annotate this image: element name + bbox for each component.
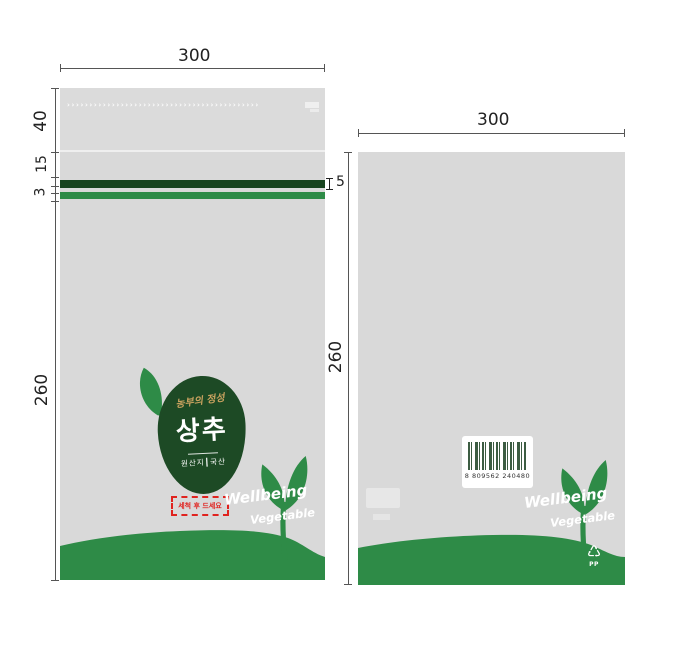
logo-blob: 농부의 정성 상추 원산지┃국산 — [155, 374, 249, 496]
dim-tick — [51, 88, 59, 89]
logo-script-text: 농부의 정성 — [175, 389, 226, 411]
recycle-icon: ♺ PP — [580, 544, 608, 568]
dim-tick — [344, 584, 352, 585]
front-bag: ››››››››››››››››››››››››››››››››››››››››… — [60, 88, 325, 580]
dim-front-small: 3 — [32, 188, 48, 197]
light-green-stripe — [60, 192, 325, 199]
perforation-line: ››››››››››››››››››››››››››››››››››››››››… — [67, 101, 319, 109]
dim-tick — [51, 580, 59, 581]
origin-label: 원산지┃국산 — [181, 456, 227, 469]
dim-tick — [324, 64, 325, 72]
perforation-end-mark — [305, 102, 319, 108]
dim-line-back-left — [348, 152, 349, 585]
stripe-thickness-bracket — [326, 178, 333, 190]
dark-green-stripe — [60, 180, 325, 188]
packaging-design-canvas: ››››››››››››››››››››››››››››››››››››››››… — [0, 0, 682, 654]
dim-tick — [51, 177, 59, 178]
warning-text: 세척 후 드세요 — [178, 501, 222, 511]
bag-flap: ››››››››››››››››››››››››››››››››››››››››… — [60, 88, 325, 152]
dim-tick — [51, 152, 59, 153]
dim-line-back-width — [358, 133, 625, 134]
dim-tick — [51, 186, 59, 187]
dim-tick — [51, 193, 59, 194]
recycle-symbol: ♺ — [580, 544, 608, 560]
recycle-material-label: PP — [580, 561, 608, 568]
dim-front-stripe: 5 — [336, 174, 345, 190]
dim-line-front-left — [55, 88, 56, 581]
dim-back-height: 260 — [326, 341, 346, 373]
dim-back-width: 300 — [477, 110, 509, 130]
warning-box: 세척 후 드세요 — [171, 496, 229, 516]
dim-front-body: 260 — [32, 374, 52, 406]
faint-stamp-mark — [366, 488, 400, 508]
dim-tick — [51, 201, 59, 202]
barcode: 8 809562 240480 — [462, 436, 533, 488]
back-bag: 8 809562 240480 Wellbeing Vegetable ♺ PP — [358, 152, 625, 585]
product-name: 상추 — [175, 409, 229, 449]
dim-front-width: 300 — [178, 46, 210, 66]
dim-front-flap: 40 — [31, 110, 51, 132]
dim-tick — [344, 152, 352, 153]
dim-tick — [358, 129, 359, 137]
faint-stamp-text — [373, 514, 390, 520]
dim-tick — [60, 64, 61, 72]
logo-divider — [188, 452, 218, 455]
dim-line-front-width — [60, 68, 325, 69]
dim-front-gap: 15 — [34, 155, 50, 173]
dim-tick — [624, 129, 625, 137]
barcode-number: 8 809562 240480 — [465, 472, 530, 480]
barcode-bars — [468, 442, 527, 470]
perforation-end-mark — [310, 109, 319, 112]
